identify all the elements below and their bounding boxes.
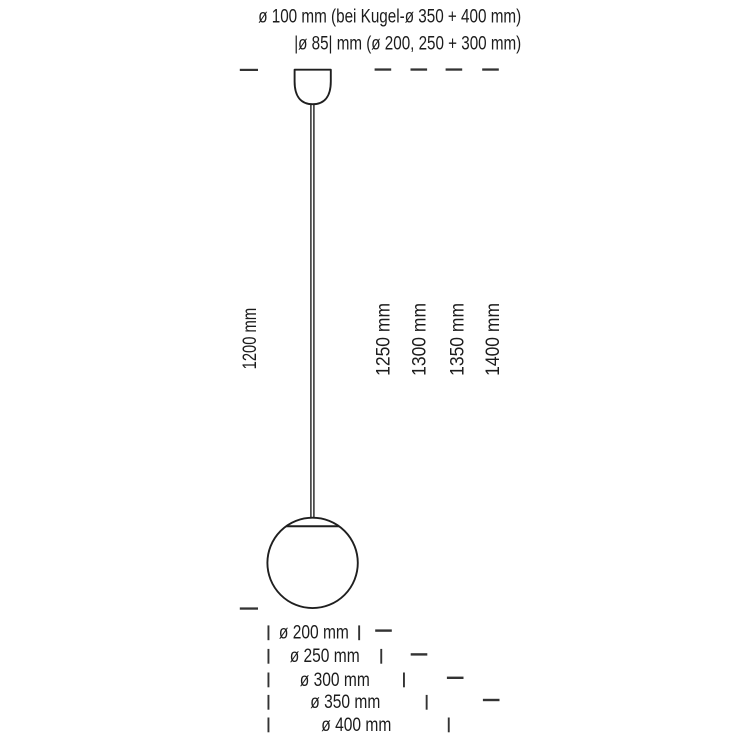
svg-text:ø 250 mm: ø 250 mm (290, 645, 360, 667)
svg-text:1250 mm: 1250 mm (373, 303, 395, 376)
svg-text:1200 mm: 1200 mm (239, 308, 261, 370)
svg-text:1350 mm: 1350 mm (446, 303, 468, 376)
svg-text:ø 350 mm: ø 350 mm (310, 691, 380, 713)
svg-text:|ø 85| mm (ø 200, 250 + 300 mm: |ø 85| mm (ø 200, 250 + 300 mm) (294, 33, 521, 55)
svg-text:ø 300 mm: ø 300 mm (300, 669, 370, 691)
svg-text:ø 100 mm (bei Kugel-ø 350 + 40: ø 100 mm (bei Kugel-ø 350 + 400 mm) (258, 6, 521, 28)
svg-text:1400 mm: 1400 mm (482, 303, 504, 376)
svg-text:ø 400 mm: ø 400 mm (321, 714, 391, 736)
svg-text:ø 200 mm: ø 200 mm (279, 622, 349, 644)
svg-text:1300 mm: 1300 mm (409, 303, 431, 376)
